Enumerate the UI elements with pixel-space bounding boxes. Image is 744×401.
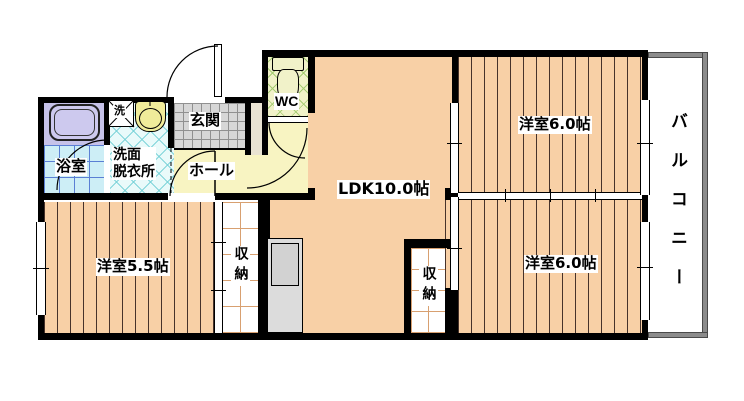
hall-label: ホール — [188, 162, 235, 180]
closet-right-label: 収納 — [419, 266, 438, 306]
wall-ldk-bedroom-c — [452, 290, 458, 333]
balcony-wall-right — [702, 52, 708, 338]
wall-closet-right-right — [445, 288, 452, 333]
ldk-label: LDK10.0帖 — [337, 180, 430, 199]
wall-entrance-right — [245, 97, 251, 155]
wall-wc-right — [308, 50, 315, 113]
kitchen-unit — [267, 238, 303, 333]
bathtub — [49, 104, 100, 141]
entrance-label: 玄関 — [189, 112, 221, 130]
window-tick — [211, 242, 226, 243]
washbasin-bowl — [139, 108, 162, 129]
wall-closet-right-top — [404, 239, 452, 248]
wall-bath-block-bottom — [38, 193, 168, 200]
wc-label: WC — [274, 93, 299, 110]
wall-wc-left — [262, 50, 268, 155]
window-tick — [33, 268, 49, 269]
hall-floor-mid — [245, 155, 268, 193]
washer-label: 洗 — [113, 105, 126, 118]
sliding-door-ldk-bedroom-bottom — [450, 197, 459, 290]
washroom-label: 洗面 脱衣所 — [112, 147, 156, 180]
entrance-door-arc — [167, 46, 218, 97]
window-bedroom-bottom-balcony — [640, 222, 650, 320]
window-tick — [447, 248, 462, 249]
partition-tick — [505, 189, 506, 202]
balcony-label: バルコニー — [666, 112, 688, 307]
wall-wc-ldk-corner — [308, 188, 315, 200]
sliding-door-ldk-bedroom-top — [450, 103, 459, 193]
wall-bottom — [38, 333, 648, 340]
balcony-wall-top — [648, 52, 708, 58]
window-tick — [447, 143, 462, 144]
entrance-door-leaf — [214, 44, 222, 97]
window-tick — [211, 290, 226, 291]
kitchen-sink — [271, 243, 299, 286]
window-tick — [637, 267, 653, 268]
wc-door — [268, 116, 308, 123]
window-tick — [637, 143, 653, 144]
wall-washroom-entrance — [168, 97, 174, 148]
ldk-floor-doorgap — [308, 113, 315, 190]
bath-label: 浴室 — [55, 158, 87, 176]
bathtub-inner — [54, 109, 95, 136]
partition-tick — [550, 189, 551, 202]
floor-plan: 浴室 洗 洗面 脱衣所 玄関 WC ホール LDK10.0帖 洋室6.0帖 洋室… — [0, 0, 744, 401]
partition-tick — [595, 189, 596, 202]
closet-left-label: 収納 — [231, 246, 250, 286]
bedroom-bottom-label: 洋室6.0帖 — [524, 255, 598, 273]
wall-closet-right-left — [404, 248, 411, 333]
sliding-door-closet-left — [214, 202, 223, 333]
balcony-wall-bottom — [648, 332, 708, 338]
washbasin — [135, 101, 166, 132]
entrance-step-strip — [251, 103, 262, 155]
bedroom-top-label: 洋室6.0帖 — [518, 116, 592, 134]
entrance-step-line — [174, 148, 245, 150]
bedroom-left-label: 洋室5.5帖 — [96, 258, 170, 276]
hall-floor-strip — [268, 123, 308, 193]
wall-ldk-bedroom-a — [452, 50, 458, 103]
window-bedroom-top-balcony — [640, 100, 650, 195]
